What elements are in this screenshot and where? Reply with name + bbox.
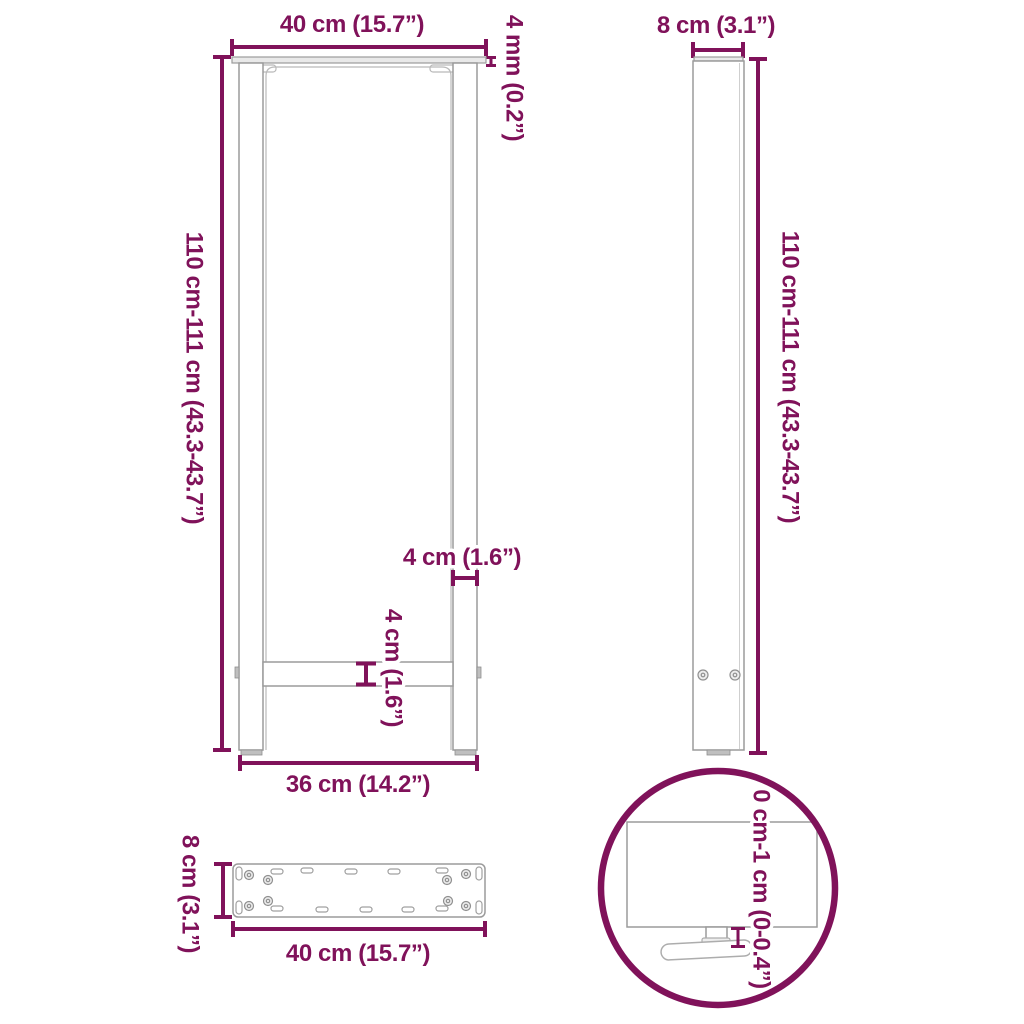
plate-depth-dimension: 8 cm (3.1”): [177, 835, 233, 953]
plate-slot: [236, 867, 242, 880]
detail-adjust-label: 0 cm-1 cm (0-0.4”): [748, 789, 775, 989]
plate-slot: [476, 867, 482, 880]
front-top-width-dimension: 40 cm (15.7”): [232, 11, 486, 56]
side-leg-body: [693, 61, 744, 750]
detail-leg-bottom: [627, 822, 817, 927]
front-right-foot: [455, 750, 476, 755]
front-crossbar: [263, 662, 453, 686]
side-view: 8 cm (3.1”) 110 cm-111 cm (43.3-43.7”): [657, 12, 804, 755]
front-plate-thickness-label: 4 mm (0.2”): [501, 15, 528, 141]
plate-slot: [301, 868, 313, 873]
front-height-label: 110 cm-111 cm (43.3-43.7”): [181, 232, 208, 524]
plate-slot: [236, 901, 242, 914]
front-bottom-width-dimension: 36 cm (14.2”): [240, 755, 477, 798]
front-leg-width-dimension: 4 cm (1.6”): [403, 544, 521, 586]
plate-slot: [271, 906, 283, 911]
plate-slot: [436, 906, 448, 911]
front-leg-width-label: 4 cm (1.6”): [403, 544, 521, 571]
plate-slot: [360, 907, 372, 912]
plate-slot: [402, 907, 414, 912]
plate-slot: [476, 901, 482, 914]
front-left-foot: [241, 750, 262, 755]
front-inner-contour: [266, 67, 451, 750]
plate-width-dimension: 40 cm (15.7”): [233, 921, 485, 967]
diagram-canvas: 40 cm (15.7”) 4 mm (0.2”) 110 cm-111 cm …: [0, 0, 1024, 1024]
plate-slot: [436, 868, 448, 873]
front-bottom-width-label: 36 cm (14.2”): [286, 771, 430, 798]
plate-width-label: 40 cm (15.7”): [286, 940, 430, 967]
front-top-plate: [232, 57, 486, 63]
plate-depth-label: 8 cm (3.1”): [177, 835, 204, 953]
front-leg-structure: [232, 57, 486, 755]
side-depth-dimension: 8 cm (3.1”): [657, 12, 775, 58]
front-top-width-label: 40 cm (15.7”): [280, 11, 424, 38]
front-right-leg: [453, 63, 477, 750]
plate-slot: [345, 869, 357, 874]
front-left-leg: [239, 63, 263, 750]
mounting-plate-top-view: 8 cm (3.1”): [177, 835, 486, 967]
foot-detail-view: 0 cm-1 cm (0-0.4”): [601, 771, 835, 1005]
side-foot: [707, 750, 730, 755]
plate-slot: [388, 869, 400, 874]
mounting-plate: [233, 864, 485, 917]
front-height-dimension: 110 cm-111 cm (43.3-43.7”): [181, 57, 232, 750]
side-screw-left: [698, 670, 708, 680]
side-screw-right: [730, 670, 740, 680]
front-left-weld-nub: [235, 667, 239, 678]
side-height-dimension: 110 cm-111 cm (43.3-43.7”): [749, 59, 804, 753]
side-leg-structure: [693, 57, 744, 755]
front-plate-thickness-dimension: 4 mm (0.2”): [486, 15, 528, 141]
side-height-label: 110 cm-111 cm (43.3-43.7”): [777, 231, 804, 523]
furniture-dimension-diagram: 40 cm (15.7”) 4 mm (0.2”) 110 cm-111 cm …: [0, 0, 1024, 1024]
front-view: 40 cm (15.7”) 4 mm (0.2”) 110 cm-111 cm …: [181, 11, 528, 798]
plate-slot: [316, 907, 328, 912]
plate-slot: [271, 869, 283, 874]
side-depth-label: 8 cm (3.1”): [657, 12, 775, 39]
front-crossbar-thickness-label: 4 cm (1.6”): [380, 609, 407, 727]
front-right-weld-nub: [477, 667, 481, 678]
